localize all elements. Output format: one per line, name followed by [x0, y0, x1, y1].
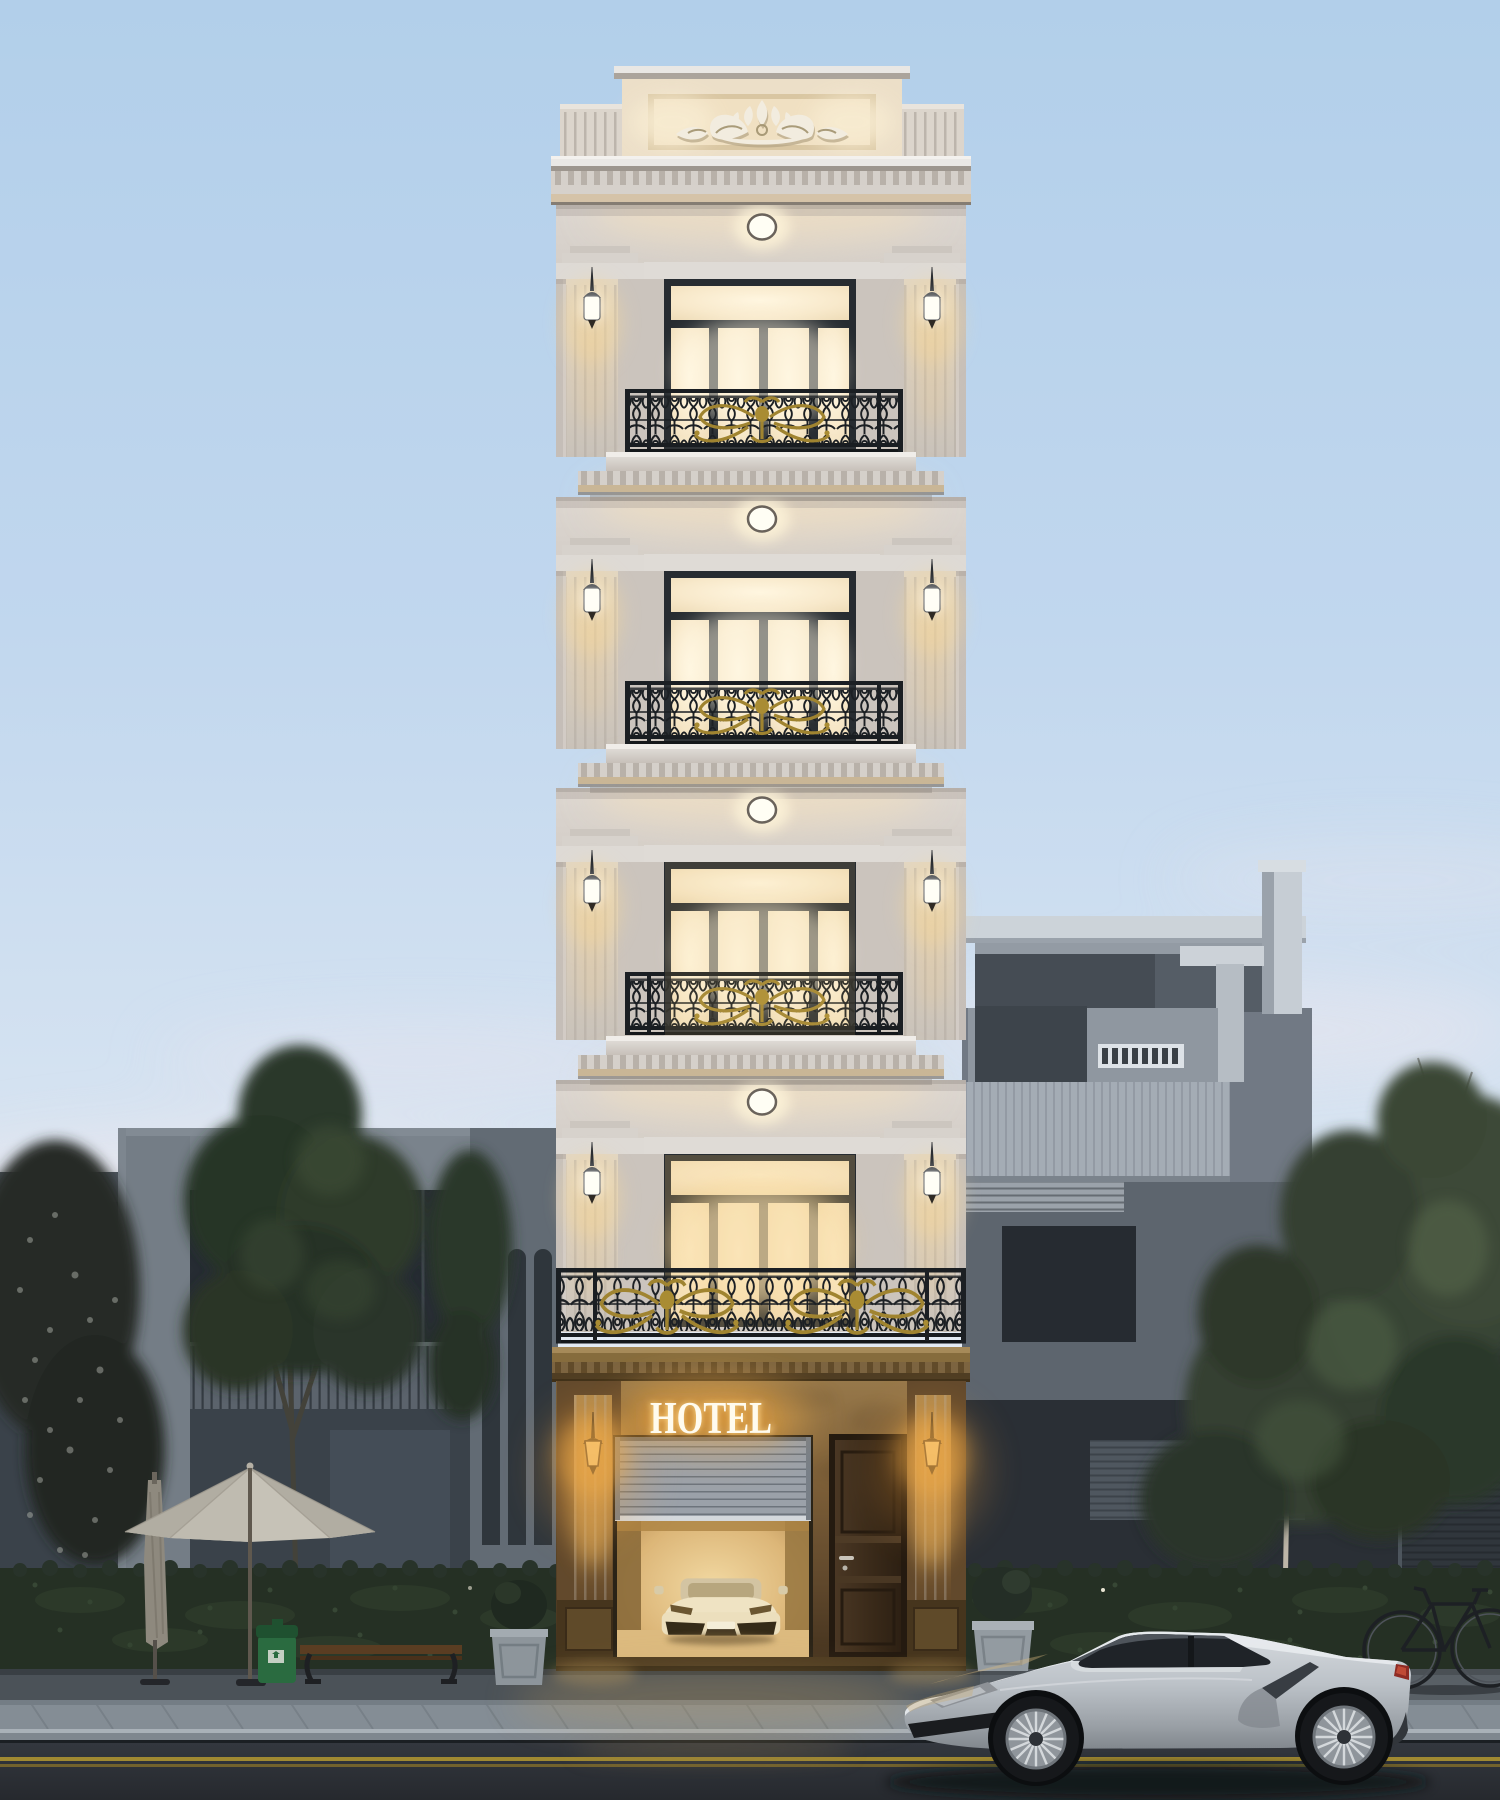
svg-text:HOTEL: HOTEL: [650, 1392, 772, 1443]
